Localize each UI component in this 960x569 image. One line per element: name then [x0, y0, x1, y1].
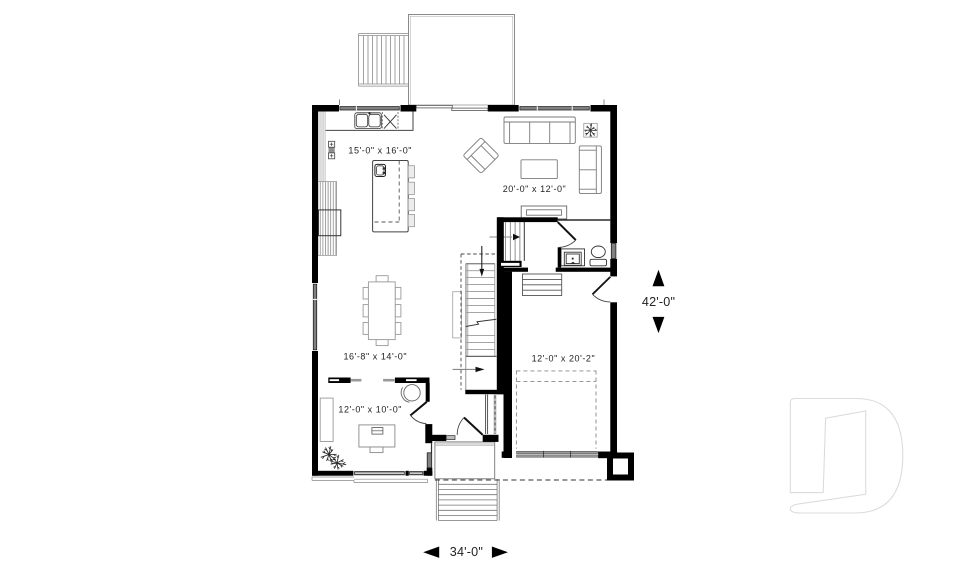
svg-text:16'-8" x 14'-0": 16'-8" x 14'-0": [343, 351, 407, 361]
svg-text:20'-0" x 12'-0": 20'-0" x 12'-0": [503, 184, 567, 194]
svg-text:15'-0" x 16'-0": 15'-0" x 16'-0": [348, 146, 412, 156]
svg-text:34'-0": 34'-0": [450, 545, 483, 559]
svg-text:12'-0" x 20'-2": 12'-0" x 20'-2": [532, 354, 596, 364]
svg-text:42'-0": 42'-0": [642, 295, 675, 309]
svg-text:12'-0" x 10'-0": 12'-0" x 10'-0": [338, 405, 402, 415]
